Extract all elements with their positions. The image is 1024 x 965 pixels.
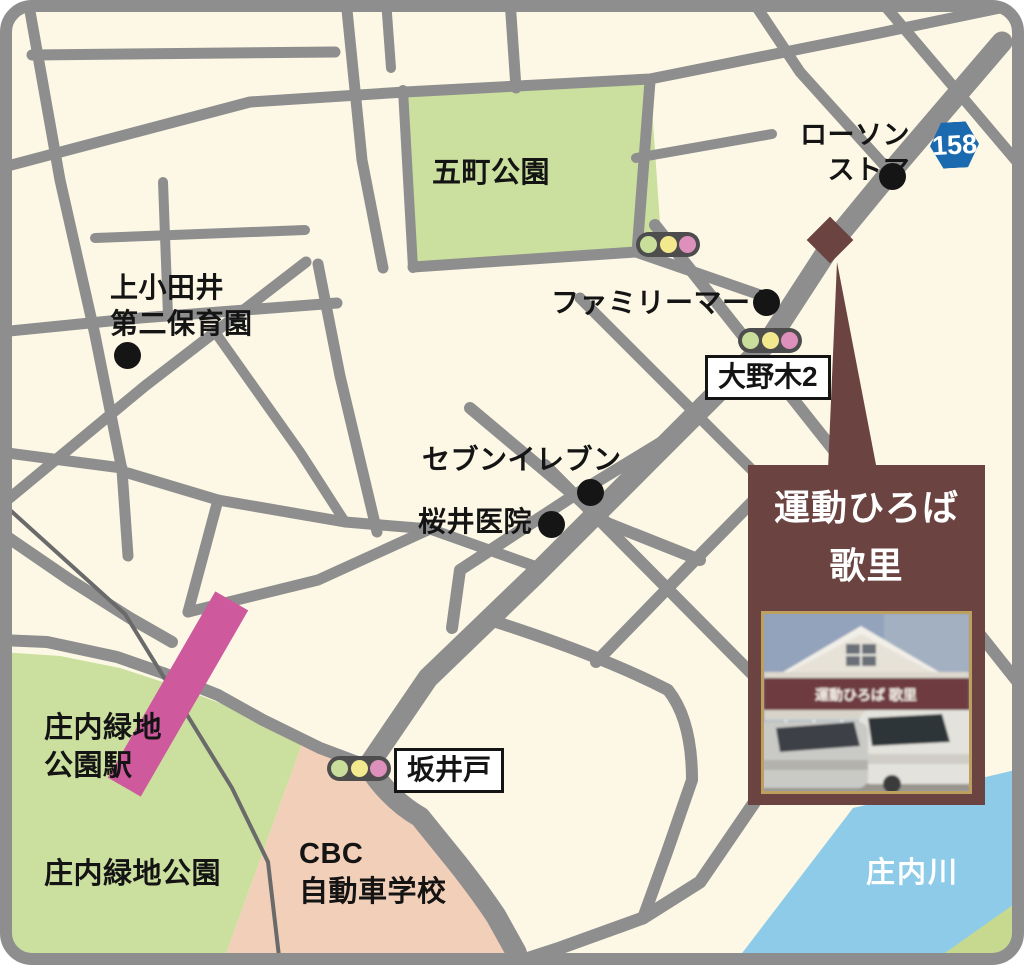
signal-green-light: [742, 332, 759, 349]
intersection-box-onogi: 大野木2: [705, 355, 831, 400]
area-map: ローソン ストア 五町公園 上小田井 第二保育園 ファミリーマート セブンイレブ…: [0, 0, 1024, 965]
signal-red-light: [370, 760, 387, 777]
label-gocho-park: 五町公園: [432, 155, 550, 193]
traffic-signal-gocho: [636, 232, 700, 257]
destination-photo-illustration: 運動ひろば 歌里: [764, 614, 969, 791]
label-sakurai-clinic: 桜井医院: [418, 504, 532, 540]
signal-green-light: [331, 760, 348, 777]
signal-yellow-light: [762, 332, 779, 349]
signal-green-light: [640, 236, 657, 253]
poi-dot-nursery: [114, 342, 141, 369]
route-number: 158: [931, 128, 978, 161]
label-shonai-ryokuchi-station: 庄内緑地 公園駅: [44, 710, 162, 785]
traffic-signal-onogi: [738, 328, 802, 353]
signal-red-light: [679, 236, 696, 253]
label-shonai-river: 庄内川: [866, 855, 959, 893]
poi-dot-seven-eleven: [577, 479, 604, 506]
signal-yellow-light: [660, 236, 677, 253]
signal-yellow-light: [351, 760, 368, 777]
label-cbc-driving-school: CBC 自動車学校: [299, 836, 447, 911]
label-familymart: ファミリーマート: [551, 285, 779, 321]
label-kamiotai-nursery: 上小田井 第二保育園: [110, 270, 253, 343]
destination-photo: 運動ひろば 歌里: [761, 611, 972, 794]
label-shonai-ryokuchi-park: 庄内緑地公園: [44, 856, 221, 894]
traffic-signal-sakaido: [327, 756, 391, 781]
signal-red-light: [781, 332, 798, 349]
intersection-box-sakaido: 坂井戸: [394, 748, 504, 793]
destination-callout: 運動ひろば 歌里 運動ひろば 歌里: [748, 465, 985, 805]
poi-dot-sakurai-clinic: [538, 511, 565, 538]
poi-dot-familymart: [753, 289, 780, 316]
svg-text:運動ひろば 歌里: 運動ひろば 歌里: [815, 687, 917, 703]
poi-dot-lawson: [879, 163, 906, 190]
label-seven-eleven: セブンイレブン: [422, 442, 622, 478]
destination-title: 運動ひろば 歌里: [748, 465, 985, 594]
